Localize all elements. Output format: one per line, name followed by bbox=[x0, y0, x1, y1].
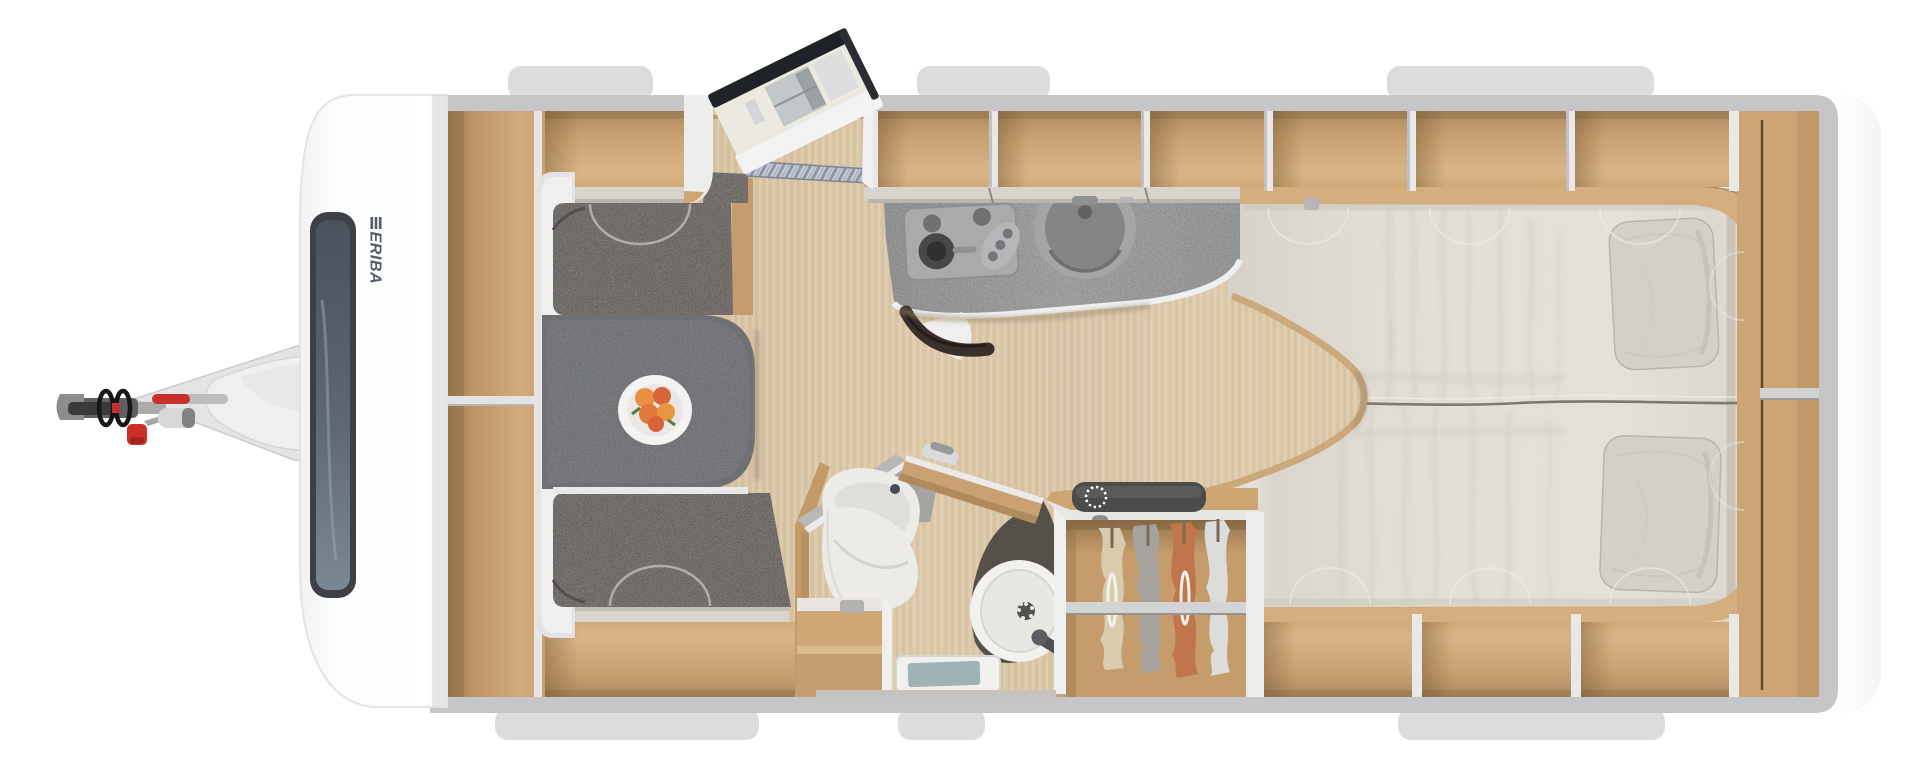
svg-text:ERIBA: ERIBA bbox=[367, 232, 384, 285]
